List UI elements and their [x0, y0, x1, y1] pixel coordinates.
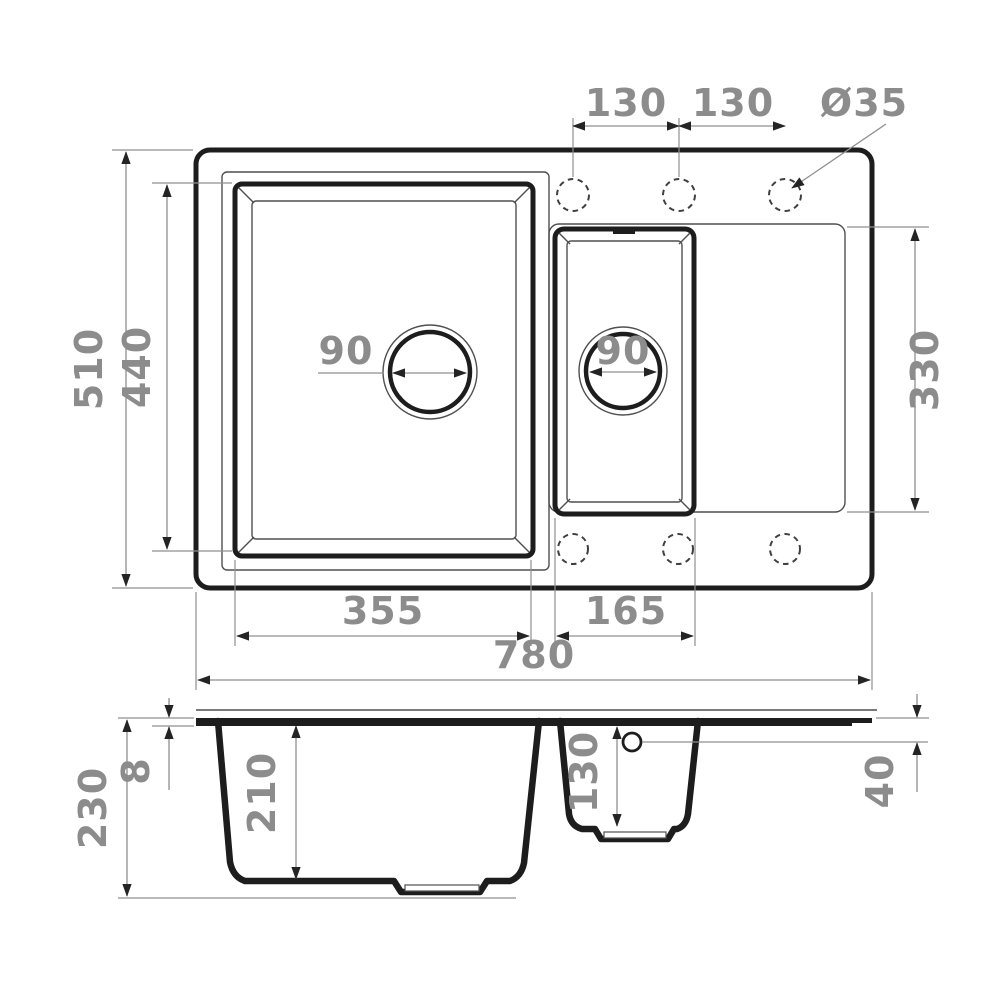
main-drain-plate — [405, 885, 479, 891]
dim-label-main-bowl-width: 355 — [342, 589, 424, 633]
faucet-hole-6 — [770, 534, 800, 564]
dim-label-small-bowl-width: 165 — [585, 589, 667, 633]
dim-label-drainer-edge-height: 40 — [858, 754, 902, 809]
faucet-hole-1 — [557, 179, 589, 211]
faucet-hole-5 — [663, 534, 693, 564]
dim-label-overall-height: 230 — [71, 767, 115, 849]
sink-technical-drawing: 130 130 Ø35 510 440 330 90 90 355 — [0, 0, 1000, 1000]
dim-label-drainer-depth: 330 — [903, 329, 947, 411]
dim-label-hole-spacing-right: 130 — [692, 81, 774, 125]
small-bowl-overflow-slot — [613, 227, 635, 234]
top-view — [196, 150, 872, 588]
dim-label-main-bowl-depth: 440 — [115, 326, 159, 408]
dim-label-overall-depth: 510 — [67, 328, 111, 410]
dim-label-small-drain: 90 — [596, 329, 651, 373]
overflow-hole — [623, 733, 641, 751]
main-bowl-rim — [235, 184, 533, 556]
rim-surface — [196, 718, 872, 726]
dim-label-main-bowl-height: 210 — [240, 752, 284, 834]
dim-label-rim-thickness: 8 — [114, 757, 158, 784]
dim-label-hole-diameter: Ø35 — [820, 81, 908, 125]
dim-label-small-bowl-height: 130 — [562, 731, 606, 813]
drawing-canvas: 130 130 Ø35 510 440 330 90 90 355 — [0, 0, 1000, 1000]
small-drain-plate — [604, 832, 666, 838]
dim-label-hole-spacing-left: 130 — [585, 81, 667, 125]
faucet-hole-3 — [769, 179, 801, 211]
drainer-edge-taper — [852, 723, 873, 726]
dim-label-main-drain: 90 — [319, 329, 374, 373]
dim-label-overall-width: 780 — [493, 633, 575, 677]
faucet-hole-4 — [558, 534, 588, 564]
faucet-hole-2 — [663, 179, 695, 211]
